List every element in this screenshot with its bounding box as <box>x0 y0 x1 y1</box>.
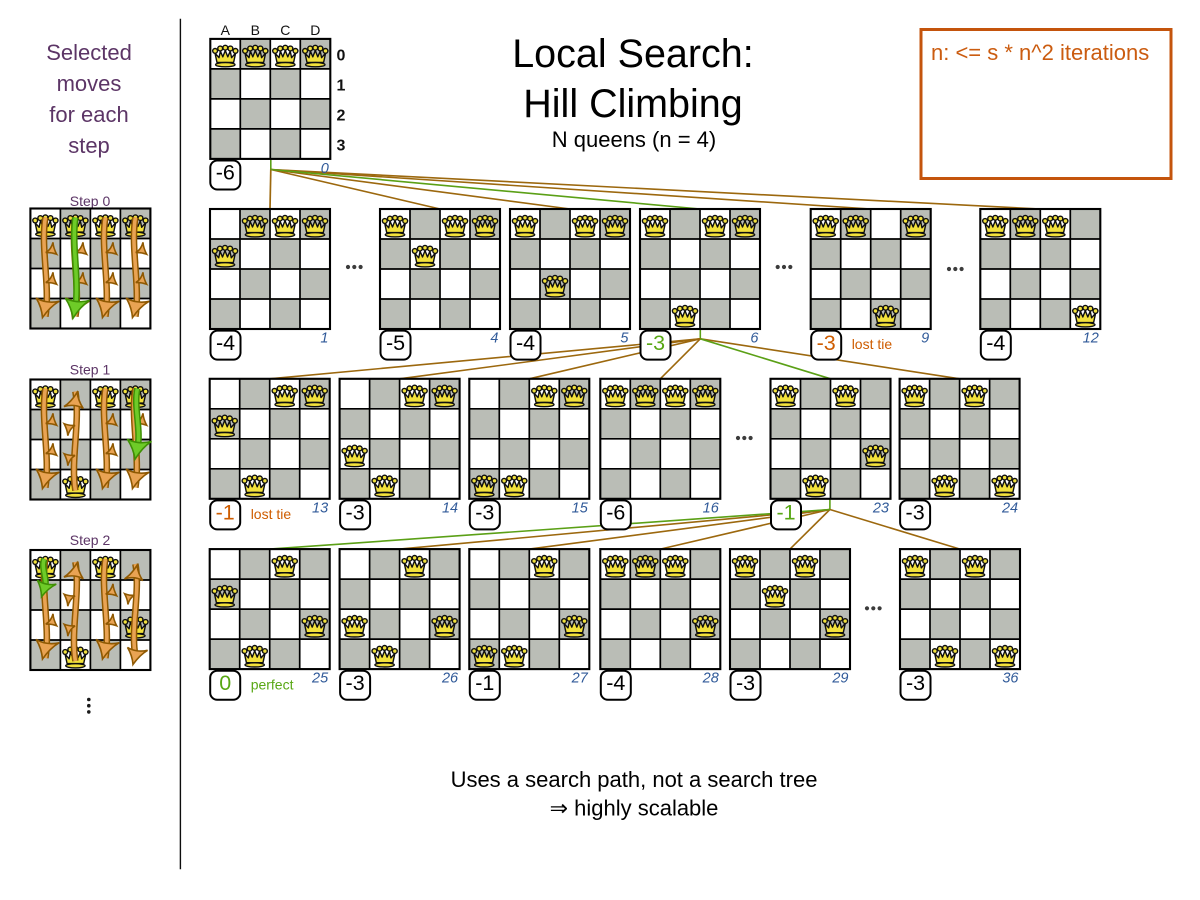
svg-text:-6: -6 <box>216 161 235 185</box>
svg-text:-4: -4 <box>986 331 1005 355</box>
svg-text:-3: -3 <box>646 331 665 355</box>
svg-text:Selectedmovesfor eachstep: Selectedmovesfor eachstep <box>46 40 132 158</box>
svg-text:Step 1: Step 1 <box>70 362 111 378</box>
svg-text:16: 16 <box>703 500 720 516</box>
svg-text:-5: -5 <box>386 331 405 355</box>
svg-text:-4: -4 <box>216 331 235 355</box>
svg-text:5: 5 <box>620 331 629 347</box>
svg-text:28: 28 <box>702 671 719 687</box>
svg-text:27: 27 <box>571 671 589 687</box>
svg-text:lost tie: lost tie <box>852 336 893 352</box>
svg-text:-6: -6 <box>606 501 625 525</box>
svg-text:-1: -1 <box>475 671 494 695</box>
svg-text:6: 6 <box>750 331 759 347</box>
svg-text:0: 0 <box>219 671 231 695</box>
svg-text:-3: -3 <box>906 501 925 525</box>
svg-text:-1: -1 <box>776 501 795 525</box>
svg-text:-3: -3 <box>346 671 365 695</box>
svg-text:-3: -3 <box>906 671 925 695</box>
svg-text:ABCD: ABCD <box>221 22 321 38</box>
svg-text:9: 9 <box>921 331 929 347</box>
svg-text:-4: -4 <box>606 671 625 695</box>
svg-text:-3: -3 <box>736 671 755 695</box>
svg-text:-1: -1 <box>216 501 235 525</box>
svg-text:24: 24 <box>1001 500 1018 516</box>
svg-text:25: 25 <box>311 671 329 687</box>
svg-text:14: 14 <box>442 500 458 516</box>
svg-text:-3: -3 <box>346 501 365 525</box>
svg-text:36: 36 <box>1002 671 1019 687</box>
svg-text:26: 26 <box>441 671 459 687</box>
svg-text:Step 0: Step 0 <box>70 193 111 209</box>
svg-text:lost tie: lost tie <box>251 506 292 522</box>
svg-text:perfect: perfect <box>251 676 294 692</box>
svg-text:Local Search:Hill Climbing: Local Search:Hill Climbing <box>512 32 754 126</box>
svg-text:0123: 0123 <box>337 48 346 155</box>
svg-text:29: 29 <box>831 671 848 687</box>
svg-text:15: 15 <box>572 500 589 516</box>
svg-text:Uses a search path, not a sear: Uses a search path, not a search tree⇒ h… <box>451 767 818 821</box>
svg-text:12: 12 <box>1083 331 1099 347</box>
svg-text:-3: -3 <box>475 501 494 525</box>
svg-text:13: 13 <box>312 500 328 516</box>
svg-text:n: <= s * n^2 iterations: n: <= s * n^2 iterations <box>931 40 1149 65</box>
svg-text:0: 0 <box>321 161 329 177</box>
svg-text:-3: -3 <box>817 331 836 355</box>
svg-text:N queens (n = 4): N queens (n = 4) <box>552 127 716 152</box>
svg-text:4: 4 <box>490 331 498 347</box>
svg-text:-4: -4 <box>516 331 535 355</box>
svg-text:Step 2: Step 2 <box>70 532 111 548</box>
svg-text:1: 1 <box>320 331 328 347</box>
svg-text:23: 23 <box>872 500 889 516</box>
